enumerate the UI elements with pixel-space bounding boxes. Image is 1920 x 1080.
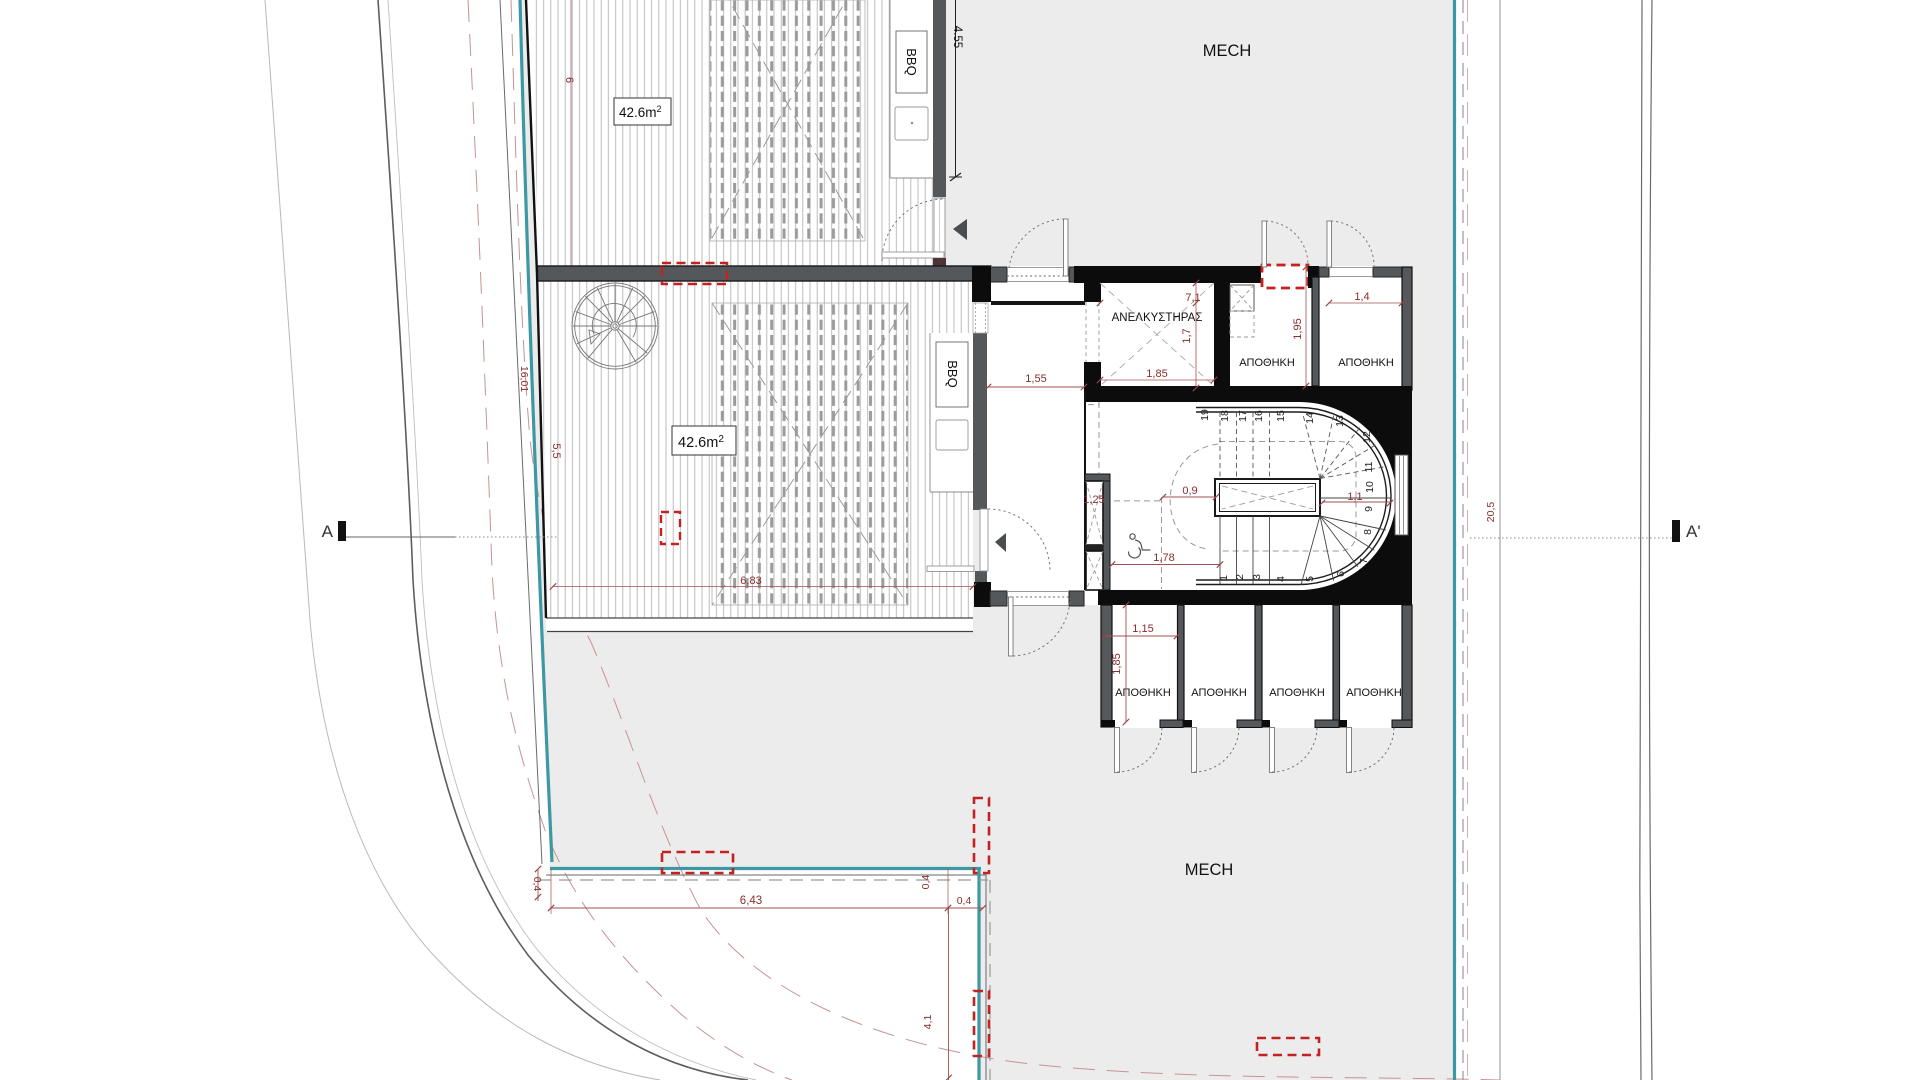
svg-text:ΑΠΟΘΗΚΗ: ΑΠΟΘΗΚΗ — [1115, 687, 1171, 699]
svg-text:1,4: 1,4 — [1354, 291, 1369, 303]
svg-text:3: 3 — [1251, 574, 1263, 580]
svg-text:42.6m2: 42.6m2 — [619, 104, 662, 120]
svg-text:0,4: 0,4 — [957, 895, 972, 907]
svg-text:6,83: 6,83 — [740, 575, 761, 587]
svg-text:1,78: 1,78 — [1153, 552, 1174, 564]
svg-text:1,85: 1,85 — [1111, 653, 1123, 674]
svg-text:1,15: 1,15 — [1132, 623, 1153, 635]
svg-text:18: 18 — [1219, 410, 1231, 422]
svg-text:MECH: MECH — [1203, 42, 1252, 60]
svg-text:5,5: 5,5 — [550, 443, 562, 458]
svg-text:5: 5 — [1304, 576, 1316, 582]
svg-text:12: 12 — [1361, 431, 1373, 443]
svg-text:MECH: MECH — [1185, 861, 1234, 879]
svg-text:ΑΠΟΘΗΚΗ: ΑΠΟΘΗΚΗ — [1239, 357, 1295, 369]
svg-text:8: 8 — [1362, 529, 1374, 535]
svg-text:2: 2 — [1234, 574, 1246, 580]
svg-text:ΑΠΟΘΗΚΗ: ΑΠΟΘΗΚΗ — [1346, 687, 1402, 699]
svg-text:ΑΝΕΛΚΥΣΤΗΡΑΣ: ΑΝΕΛΚΥΣΤΗΡΑΣ — [1112, 312, 1203, 324]
svg-text:10: 10 — [1364, 481, 1376, 493]
svg-text:14: 14 — [1304, 412, 1316, 424]
svg-text:1,85: 1,85 — [1146, 368, 1167, 380]
svg-text:ΑΠΟΘΗΚΗ: ΑΠΟΘΗΚΗ — [1191, 687, 1247, 699]
svg-text:7: 7 — [1358, 558, 1370, 564]
svg-text:1,55: 1,55 — [1025, 373, 1046, 385]
svg-text:1,25: 1,25 — [1083, 494, 1104, 506]
svg-text:19: 19 — [1199, 409, 1211, 421]
svg-text:1,1: 1,1 — [1347, 491, 1362, 503]
svg-text:6,43: 6,43 — [740, 895, 762, 907]
svg-text:BBQ: BBQ — [904, 48, 919, 75]
svg-text:0,4: 0,4 — [920, 875, 932, 890]
svg-text:6: 6 — [563, 77, 575, 83]
svg-text:4.55: 4.55 — [951, 26, 963, 48]
svg-text:0,9: 0,9 — [1182, 485, 1197, 497]
svg-text:A': A' — [1686, 522, 1701, 541]
svg-text:BBQ: BBQ — [945, 360, 960, 387]
svg-text:A: A — [322, 522, 334, 541]
svg-text:4: 4 — [1275, 576, 1287, 582]
svg-text:ΑΠΟΘΗΚΗ: ΑΠΟΘΗΚΗ — [1338, 357, 1394, 369]
svg-text:1,95: 1,95 — [1292, 318, 1304, 339]
svg-text:20,5: 20,5 — [1485, 502, 1497, 523]
svg-text:0,4: 0,4 — [531, 877, 543, 892]
svg-text:9: 9 — [1363, 506, 1375, 512]
svg-text:42.6m2: 42.6m2 — [678, 434, 724, 451]
svg-text:ΑΠΟΘΗΚΗ: ΑΠΟΘΗΚΗ — [1269, 687, 1325, 699]
svg-text:16: 16 — [1253, 410, 1265, 422]
svg-text:16,01: 16,01 — [518, 366, 530, 392]
svg-text:17: 17 — [1237, 410, 1249, 422]
svg-text:1,7: 1,7 — [1181, 328, 1193, 343]
svg-text:13: 13 — [1334, 415, 1346, 427]
svg-text:6: 6 — [1335, 571, 1347, 577]
svg-text:15: 15 — [1275, 410, 1287, 422]
svg-text:7,1: 7,1 — [1185, 292, 1200, 304]
svg-text:4,1: 4,1 — [922, 1015, 934, 1030]
svg-text:1: 1 — [1218, 575, 1230, 581]
svg-text:11: 11 — [1363, 461, 1375, 472]
